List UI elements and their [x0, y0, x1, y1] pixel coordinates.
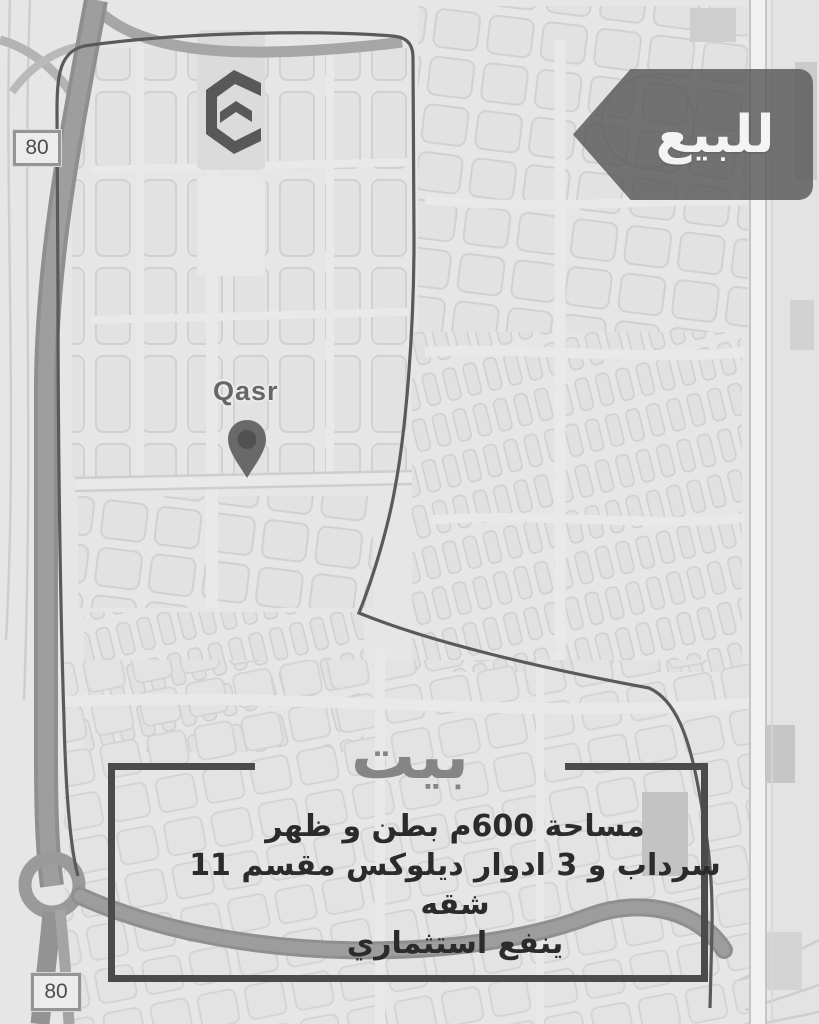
route-80-badge-top-label: 80: [25, 136, 48, 160]
real-estate-map-ad: للبيع Qasr 80 80 بيت مساحة 600م بطن و ظه…: [0, 0, 819, 1024]
place-label-qasr: Qasr: [213, 376, 279, 407]
listing-detail-line: ينفع استثماري: [162, 924, 748, 963]
for-sale-label: للبيع: [612, 109, 775, 161]
route-80-badge-bottom: 80: [31, 973, 81, 1011]
company-logo-icon: [206, 70, 262, 154]
listing-details-box: مساحة 600م بطن و ظهر سرداب و 3 ادوار ديل…: [108, 763, 708, 982]
listing-detail-line: سرداب و 3 ادوار ديلوكس مقسم 11 شقه: [162, 846, 748, 924]
route-80-badge-bottom-label: 80: [44, 980, 67, 1004]
map-pin-icon: [227, 420, 267, 478]
listing-detail-line: مساحة 600م بطن و ظهر: [162, 807, 748, 846]
route-80-badge-top: 80: [13, 130, 61, 166]
listing-headline: بيت: [310, 722, 510, 792]
